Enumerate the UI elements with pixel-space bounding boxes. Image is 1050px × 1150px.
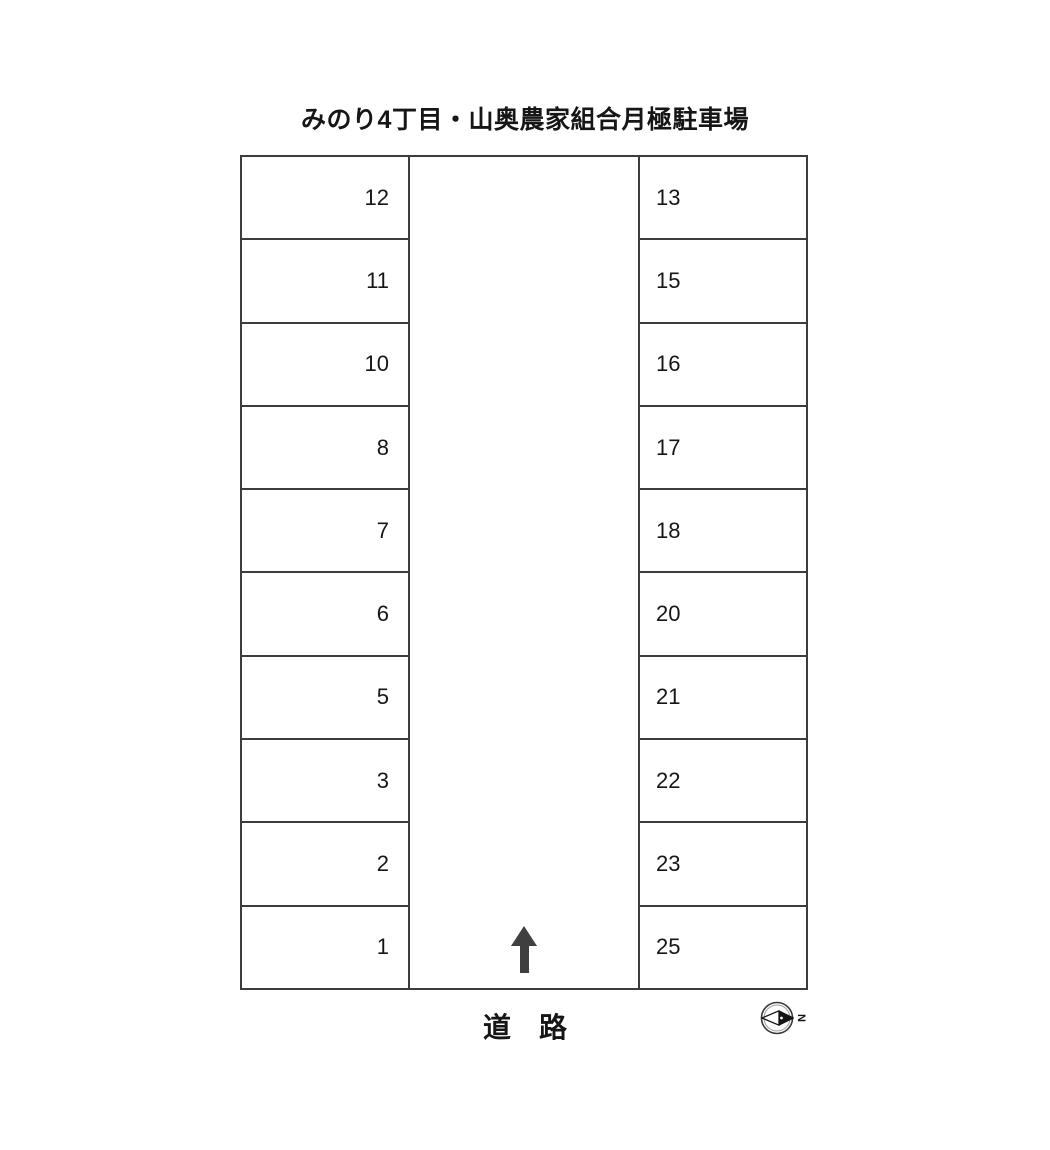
parking-space-number: 21: [656, 684, 680, 710]
parking-space-21: 21: [640, 657, 806, 740]
parking-space-number: 1: [377, 934, 389, 960]
parking-space-number: 2: [377, 851, 389, 877]
entrance-arrow-icon: [511, 926, 537, 973]
parking-column-left: 1211108765321: [242, 157, 408, 988]
parking-space-number: 20: [656, 601, 680, 627]
driveway-aisle: [408, 157, 640, 988]
compass-north-icon: N: [756, 996, 818, 1044]
arrow-stem: [520, 946, 529, 973]
parking-space-2: 2: [242, 823, 408, 906]
parking-space-22: 22: [640, 740, 806, 823]
parking-space-number: 15: [656, 268, 680, 294]
parking-space-16: 16: [640, 324, 806, 407]
parking-lot-diagram: 1211108765321 13151617182021222325: [240, 155, 808, 990]
compass-center-dot: [780, 1017, 783, 1020]
parking-space-13: 13: [640, 157, 806, 240]
parking-space-number: 17: [656, 435, 680, 461]
parking-space-number: 12: [365, 185, 389, 211]
page-title: みのり4丁目・山奥農家組合月極駐車場: [0, 100, 1050, 136]
parking-space-15: 15: [640, 240, 806, 323]
parking-space-11: 11: [242, 240, 408, 323]
parking-space-number: 5: [377, 684, 389, 710]
road-label: 道 路: [0, 1006, 1050, 1046]
parking-space-17: 17: [640, 407, 806, 490]
parking-map-page: みのり4丁目・山奥農家組合月極駐車場 1211108765321 1315161…: [0, 0, 1050, 1150]
parking-space-number: 8: [377, 435, 389, 461]
parking-space-number: 23: [656, 851, 680, 877]
parking-space-6: 6: [242, 573, 408, 656]
arrow-head: [511, 926, 537, 946]
parking-space-10: 10: [242, 324, 408, 407]
parking-space-number: 6: [377, 601, 389, 627]
parking-space-number: 10: [365, 351, 389, 377]
parking-space-8: 8: [242, 407, 408, 490]
parking-space-number: 18: [656, 518, 680, 544]
parking-space-number: 16: [656, 351, 680, 377]
parking-space-number: 25: [656, 934, 680, 960]
parking-space-number: 22: [656, 768, 680, 794]
parking-space-5: 5: [242, 657, 408, 740]
parking-space-number: 7: [377, 518, 389, 544]
parking-space-number: 3: [377, 768, 389, 794]
compass-north-letter: N: [795, 1014, 807, 1022]
parking-space-number: 13: [656, 185, 680, 211]
parking-space-20: 20: [640, 573, 806, 656]
parking-space-7: 7: [242, 490, 408, 573]
parking-column-right: 13151617182021222325: [640, 157, 806, 988]
parking-space-number: 11: [366, 268, 389, 294]
parking-space-18: 18: [640, 490, 806, 573]
parking-space-25: 25: [640, 907, 806, 988]
parking-space-23: 23: [640, 823, 806, 906]
parking-space-3: 3: [242, 740, 408, 823]
parking-space-1: 1: [242, 907, 408, 988]
parking-space-12: 12: [242, 157, 408, 240]
